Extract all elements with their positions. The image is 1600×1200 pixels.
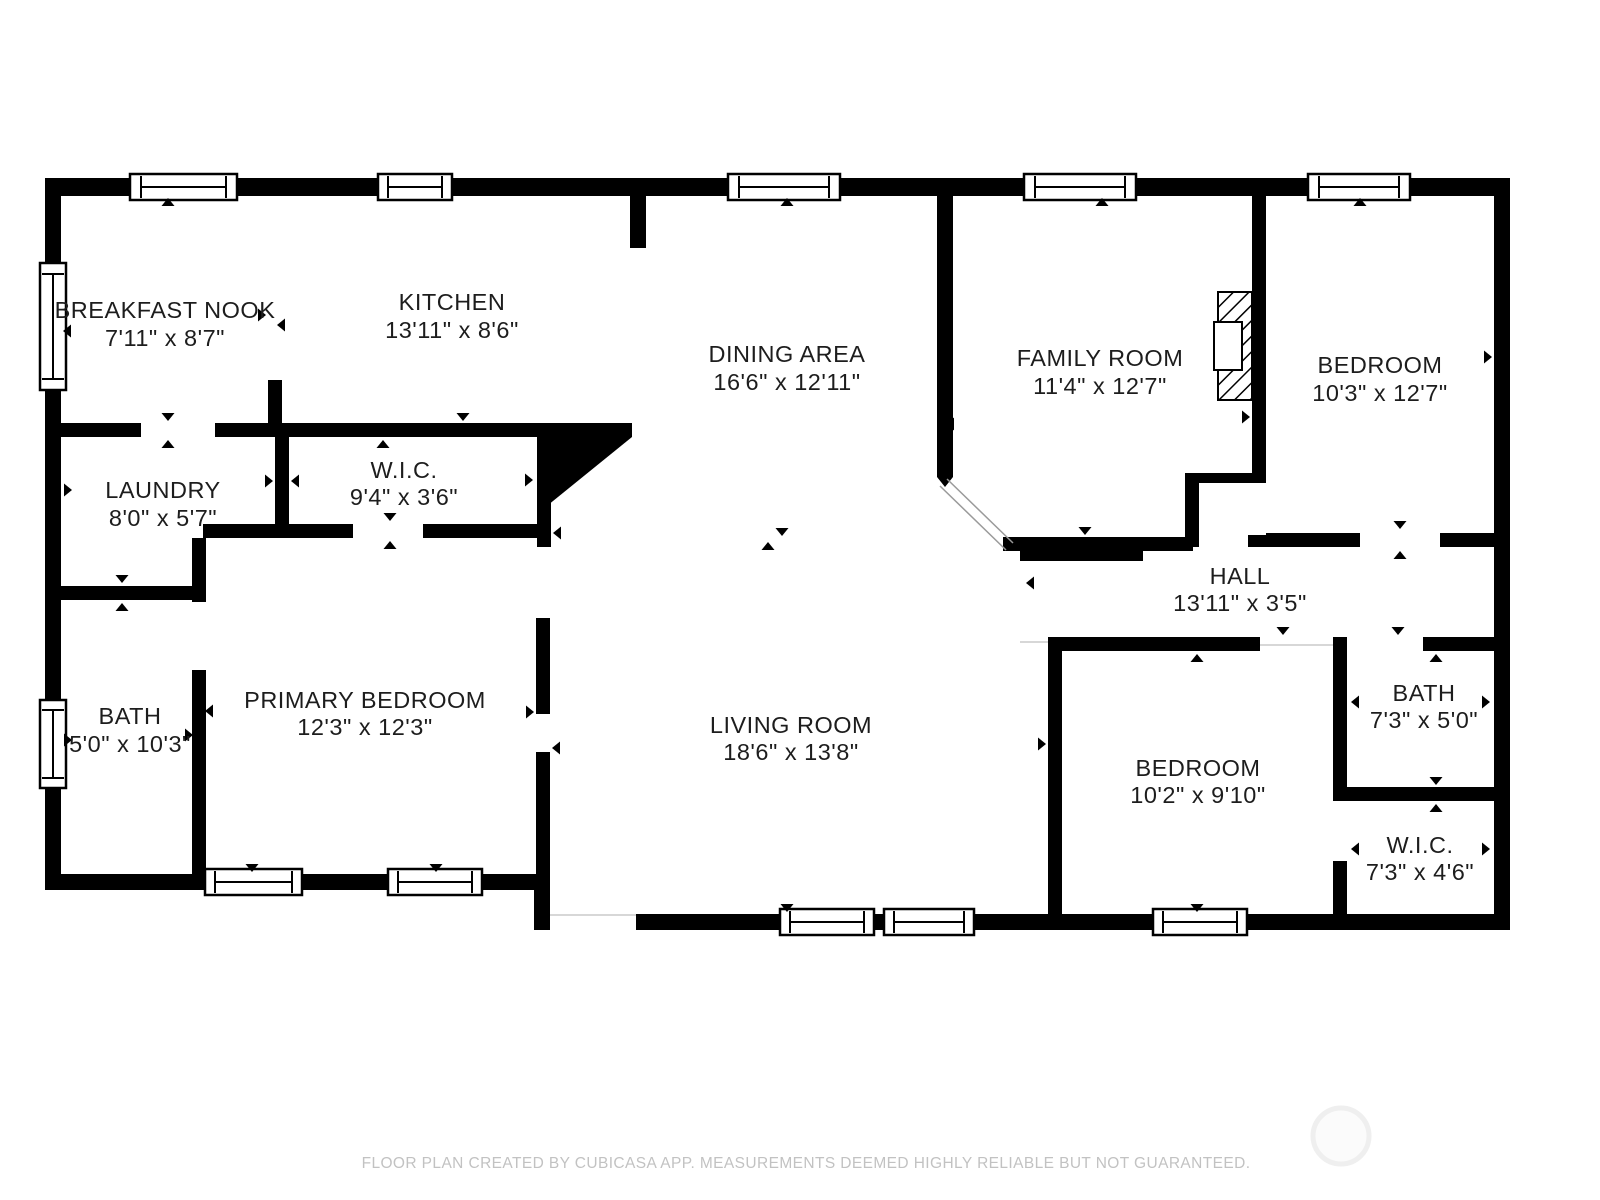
fireplace-notch xyxy=(1214,322,1242,370)
wall-bedroomtr-bottom-a xyxy=(1266,533,1360,547)
room-name: LIVING ROOM xyxy=(710,712,872,738)
wall-living-left-b xyxy=(536,752,550,874)
wall-wicbr-left xyxy=(1333,861,1347,914)
watermark-circle xyxy=(1313,1108,1369,1164)
wall-kitchen-dining-stub xyxy=(630,196,646,248)
room-label-living-room: LIVING ROOM 18'6" x 13'8" xyxy=(710,712,872,765)
wall-bath-right-bottom xyxy=(1333,787,1494,801)
wall-wic-bottom-a xyxy=(203,524,353,538)
room-dims: 13'11" x 3'5" xyxy=(1173,590,1307,616)
window-bottom-left-2 xyxy=(388,869,482,895)
wall-nook-bottom xyxy=(61,423,141,437)
window-bottom-left-1 xyxy=(205,869,302,895)
wall-kitchen-bottom xyxy=(215,423,632,437)
room-dims: 5'0" x 10'3" xyxy=(69,731,191,757)
room-name: KITCHEN xyxy=(399,289,506,315)
window-left-1 xyxy=(40,263,66,390)
wall-bottom-right xyxy=(636,914,1510,930)
room-name: W.I.C. xyxy=(371,457,438,483)
wall-family-bottom-b xyxy=(1020,551,1143,561)
room-name: DINING AREA xyxy=(709,341,866,367)
wall-bedroombr-left xyxy=(1048,651,1062,914)
window-top-3 xyxy=(728,174,840,200)
room-name: PRIMARY BEDROOM xyxy=(244,687,486,713)
room-name: BEDROOM xyxy=(1136,755,1261,781)
wall-living-left-a xyxy=(536,618,550,714)
room-dims: 7'11" x 8'7" xyxy=(105,325,225,351)
room-name: FAMILY ROOM xyxy=(1017,345,1184,371)
wall-closet-left xyxy=(1185,483,1199,547)
wall-step xyxy=(534,874,550,930)
room-dims: 9'4" x 3'6" xyxy=(350,484,458,510)
room-dims: 7'3" x 5'0" xyxy=(1370,707,1478,733)
wall-laundry-wic-divider xyxy=(275,437,289,538)
window-bottom-right-1 xyxy=(780,909,874,935)
room-name: BATH xyxy=(99,703,162,729)
room-name: BATH xyxy=(1393,680,1456,706)
wall-bath-primary-divider-b xyxy=(192,670,206,874)
room-name: BREAKFAST NOOK xyxy=(55,297,276,323)
window-top-5 xyxy=(1308,174,1410,200)
window-bottom-right-2 xyxy=(884,909,974,935)
floor-plan-canvas: BREAKFAST NOOK 7'11" x 8'7" KITCHEN 13'1… xyxy=(0,0,1600,1200)
fireplace xyxy=(1214,292,1252,400)
wall-dining-family-divider xyxy=(937,196,953,470)
wall-bath-right-top xyxy=(1423,637,1494,651)
room-dims: 10'3" x 12'7" xyxy=(1312,380,1447,406)
wall-wic-right xyxy=(537,423,551,547)
room-dims: 13'11" x 8'6" xyxy=(385,317,519,343)
window-bottom-right-3 xyxy=(1153,909,1247,935)
wall-family-bottom-a xyxy=(1003,537,1193,551)
wall-laundry-bottom xyxy=(61,586,205,600)
room-dims: 16'6" x 12'11" xyxy=(713,369,860,395)
footer-disclaimer: FLOOR PLAN CREATED BY CUBICASA APP. MEAS… xyxy=(362,1155,1251,1172)
room-dims: 12'3" x 12'3" xyxy=(297,714,432,740)
room-name: BEDROOM xyxy=(1318,352,1443,378)
room-dims: 10'2" x 9'10" xyxy=(1130,782,1265,808)
room-dims: 11'4" x 12'7" xyxy=(1033,373,1167,399)
window-left-2 xyxy=(40,700,66,788)
room-name: W.I.C. xyxy=(1387,832,1454,858)
cubicasa-logo-watermark xyxy=(1313,1108,1369,1164)
wall-right xyxy=(1494,178,1510,930)
wall-bath-right-left xyxy=(1333,637,1347,787)
wall-nook-stub xyxy=(268,380,282,425)
room-label-bedroom-bottom: BEDROOM 10'2" x 9'10" xyxy=(1130,755,1265,808)
room-dims: 8'0" x 5'7" xyxy=(109,505,217,531)
room-name: LAUNDRY xyxy=(105,477,220,503)
wall-family-right xyxy=(1252,196,1266,480)
wall-bedroombr-top xyxy=(1048,637,1260,651)
wall-bedroomtr-bottom-b xyxy=(1440,533,1494,547)
room-dims: 7'3" x 4'6" xyxy=(1366,859,1474,885)
wall-bath-primary-divider-a xyxy=(192,538,206,602)
window-top-2 xyxy=(378,174,452,200)
room-dims: 18'6" x 13'8" xyxy=(723,739,858,765)
window-top-4 xyxy=(1024,174,1136,200)
window-top-1 xyxy=(130,174,237,200)
room-name: HALL xyxy=(1210,563,1271,589)
wall-wic-bottom-b xyxy=(423,524,537,538)
